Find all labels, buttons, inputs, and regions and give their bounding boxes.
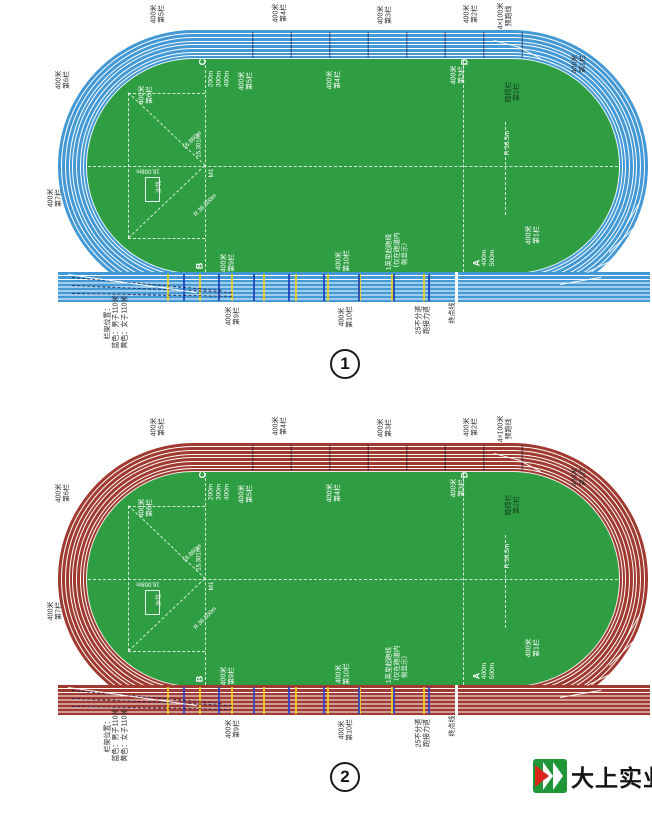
track-label: 400米 第10栏 (336, 250, 353, 272)
track-label: D (460, 472, 471, 479)
track-label: 400米 第6栏 (139, 499, 156, 518)
track-label: M1 (208, 168, 216, 177)
track-label: 400米 第6栏 (56, 484, 73, 503)
track-label: 25不分道 跑接力道 (416, 719, 433, 748)
track-label: 栏架位置： 蓝色：男子110米 黄色：女子110米 (104, 708, 129, 761)
diagram-number-badge: 2 (330, 762, 360, 792)
track-label: 400米 第4栏 (273, 417, 290, 436)
track-label: 400米 第10栏 (339, 306, 356, 328)
diagram-number: 2 (340, 767, 349, 787)
track-label: 400米 第1栏 (572, 55, 589, 74)
label-layer: 400米 第5栏400米 第4栏400米 第3栏400米 第2栏4×100米 预… (0, 0, 652, 400)
track-label: 400米 第3栏 (378, 6, 395, 25)
track-label: 400m 500m (481, 663, 497, 679)
track-label: 400米 第5栏 (151, 418, 168, 437)
track-label: 400米 第3栏 (451, 66, 468, 85)
track-label: 400米 第9栏 (226, 720, 243, 739)
track-label: 栏架位置： 蓝色：男子110米 黄色：女子110米 (104, 295, 129, 348)
track-label: C (198, 59, 209, 66)
track-label: 障碍栏 第2栏 (506, 82, 523, 103)
track-label: 400米 第4栏 (327, 71, 344, 90)
track-label: 4×100米 预跑线 (498, 3, 515, 30)
track-label: 400米 第2栏 (464, 418, 481, 437)
track-label: 4×100米 预跑线 (498, 416, 515, 443)
track-label: 400米 第3栏 (451, 479, 468, 498)
track-label: B (195, 676, 206, 683)
track-label: R 36.5m (504, 131, 512, 156)
track-label: 400米 第5栏 (239, 485, 256, 504)
track-label: 400米 第5栏 (151, 5, 168, 24)
track-label: 1英里起跑线 （仅在跑道内 侧显示） (385, 646, 408, 685)
track-label: M1 (208, 581, 216, 590)
track-label: 16.008m (136, 579, 159, 586)
track-label: 400米 第10栏 (339, 719, 356, 741)
chevron-icon (553, 762, 563, 790)
track-label: 沙坑 (156, 594, 163, 606)
track-label: 400米 第5栏 (239, 72, 256, 91)
track-label: 25不分道 跑接力道 (416, 306, 433, 335)
track-label: 障碍栏 第2栏 (506, 495, 523, 516)
label-layer: 400米 第5栏400米 第4栏400米 第3栏400米 第2栏4×100米 预… (0, 413, 652, 813)
diagram-number: 1 (340, 354, 349, 374)
track-label: D (460, 59, 471, 66)
track-label: 400米 第9栏 (226, 307, 243, 326)
track-label: R 36.5m (504, 544, 512, 569)
track-label: C (198, 472, 209, 479)
track-label: 400米 第3栏 (378, 419, 395, 438)
track-label: B (195, 263, 206, 270)
track-diagram-red: 400米 第5栏400米 第4栏400米 第3栏400米 第2栏4×100米 预… (0, 413, 652, 813)
track-label: 400米 第9栏 (221, 254, 238, 273)
track-diagram-blue: 400米 第5栏400米 第4栏400米 第3栏400米 第2栏4×100米 预… (0, 0, 652, 400)
triangle-icon (535, 765, 549, 787)
track-diagram-poster: { "diagrams": [ { "number_label": "1", "… (0, 0, 652, 797)
track-label: 16.008m (136, 166, 159, 173)
track-label: R 36.500m (193, 606, 219, 632)
track-label: 400米 第9栏 (221, 667, 238, 686)
track-label: 终点线 (449, 303, 457, 324)
track-label: 沙坑 (156, 181, 163, 193)
track-label: 400米 第1栏 (572, 468, 589, 487)
track-label: 200m 300m 400m (207, 71, 230, 87)
track-label: 400米 第6栏 (56, 71, 73, 90)
track-label: 1英里起跑线 （仅在跑道内 侧显示） (385, 233, 408, 272)
track-label: 400米 第10栏 (336, 663, 353, 685)
track-label: 400米 第1栏 (526, 639, 543, 658)
brand-name: 大上实业 (571, 759, 652, 793)
track-label: 400m 500m (481, 250, 497, 266)
track-label: 400米 第4栏 (273, 4, 290, 23)
track-label: 400米 第6栏 (139, 86, 156, 105)
brand-logo-icon (533, 759, 567, 793)
track-label: 400米 第2栏 (464, 5, 481, 24)
track-label: 200m 300m 400m (207, 484, 230, 500)
track-label: 400米 第4栏 (327, 484, 344, 503)
track-label: 400米 第1栏 (526, 226, 543, 245)
track-label: 400米 第7栏 (48, 189, 65, 208)
brand-logo: 大上实业 (533, 757, 652, 795)
diagram-number-badge: 1 (330, 349, 360, 379)
track-label: R 36.500m (193, 193, 219, 219)
track-label: 400米 第7栏 (48, 602, 65, 621)
track-label: 终点线 (449, 716, 457, 737)
